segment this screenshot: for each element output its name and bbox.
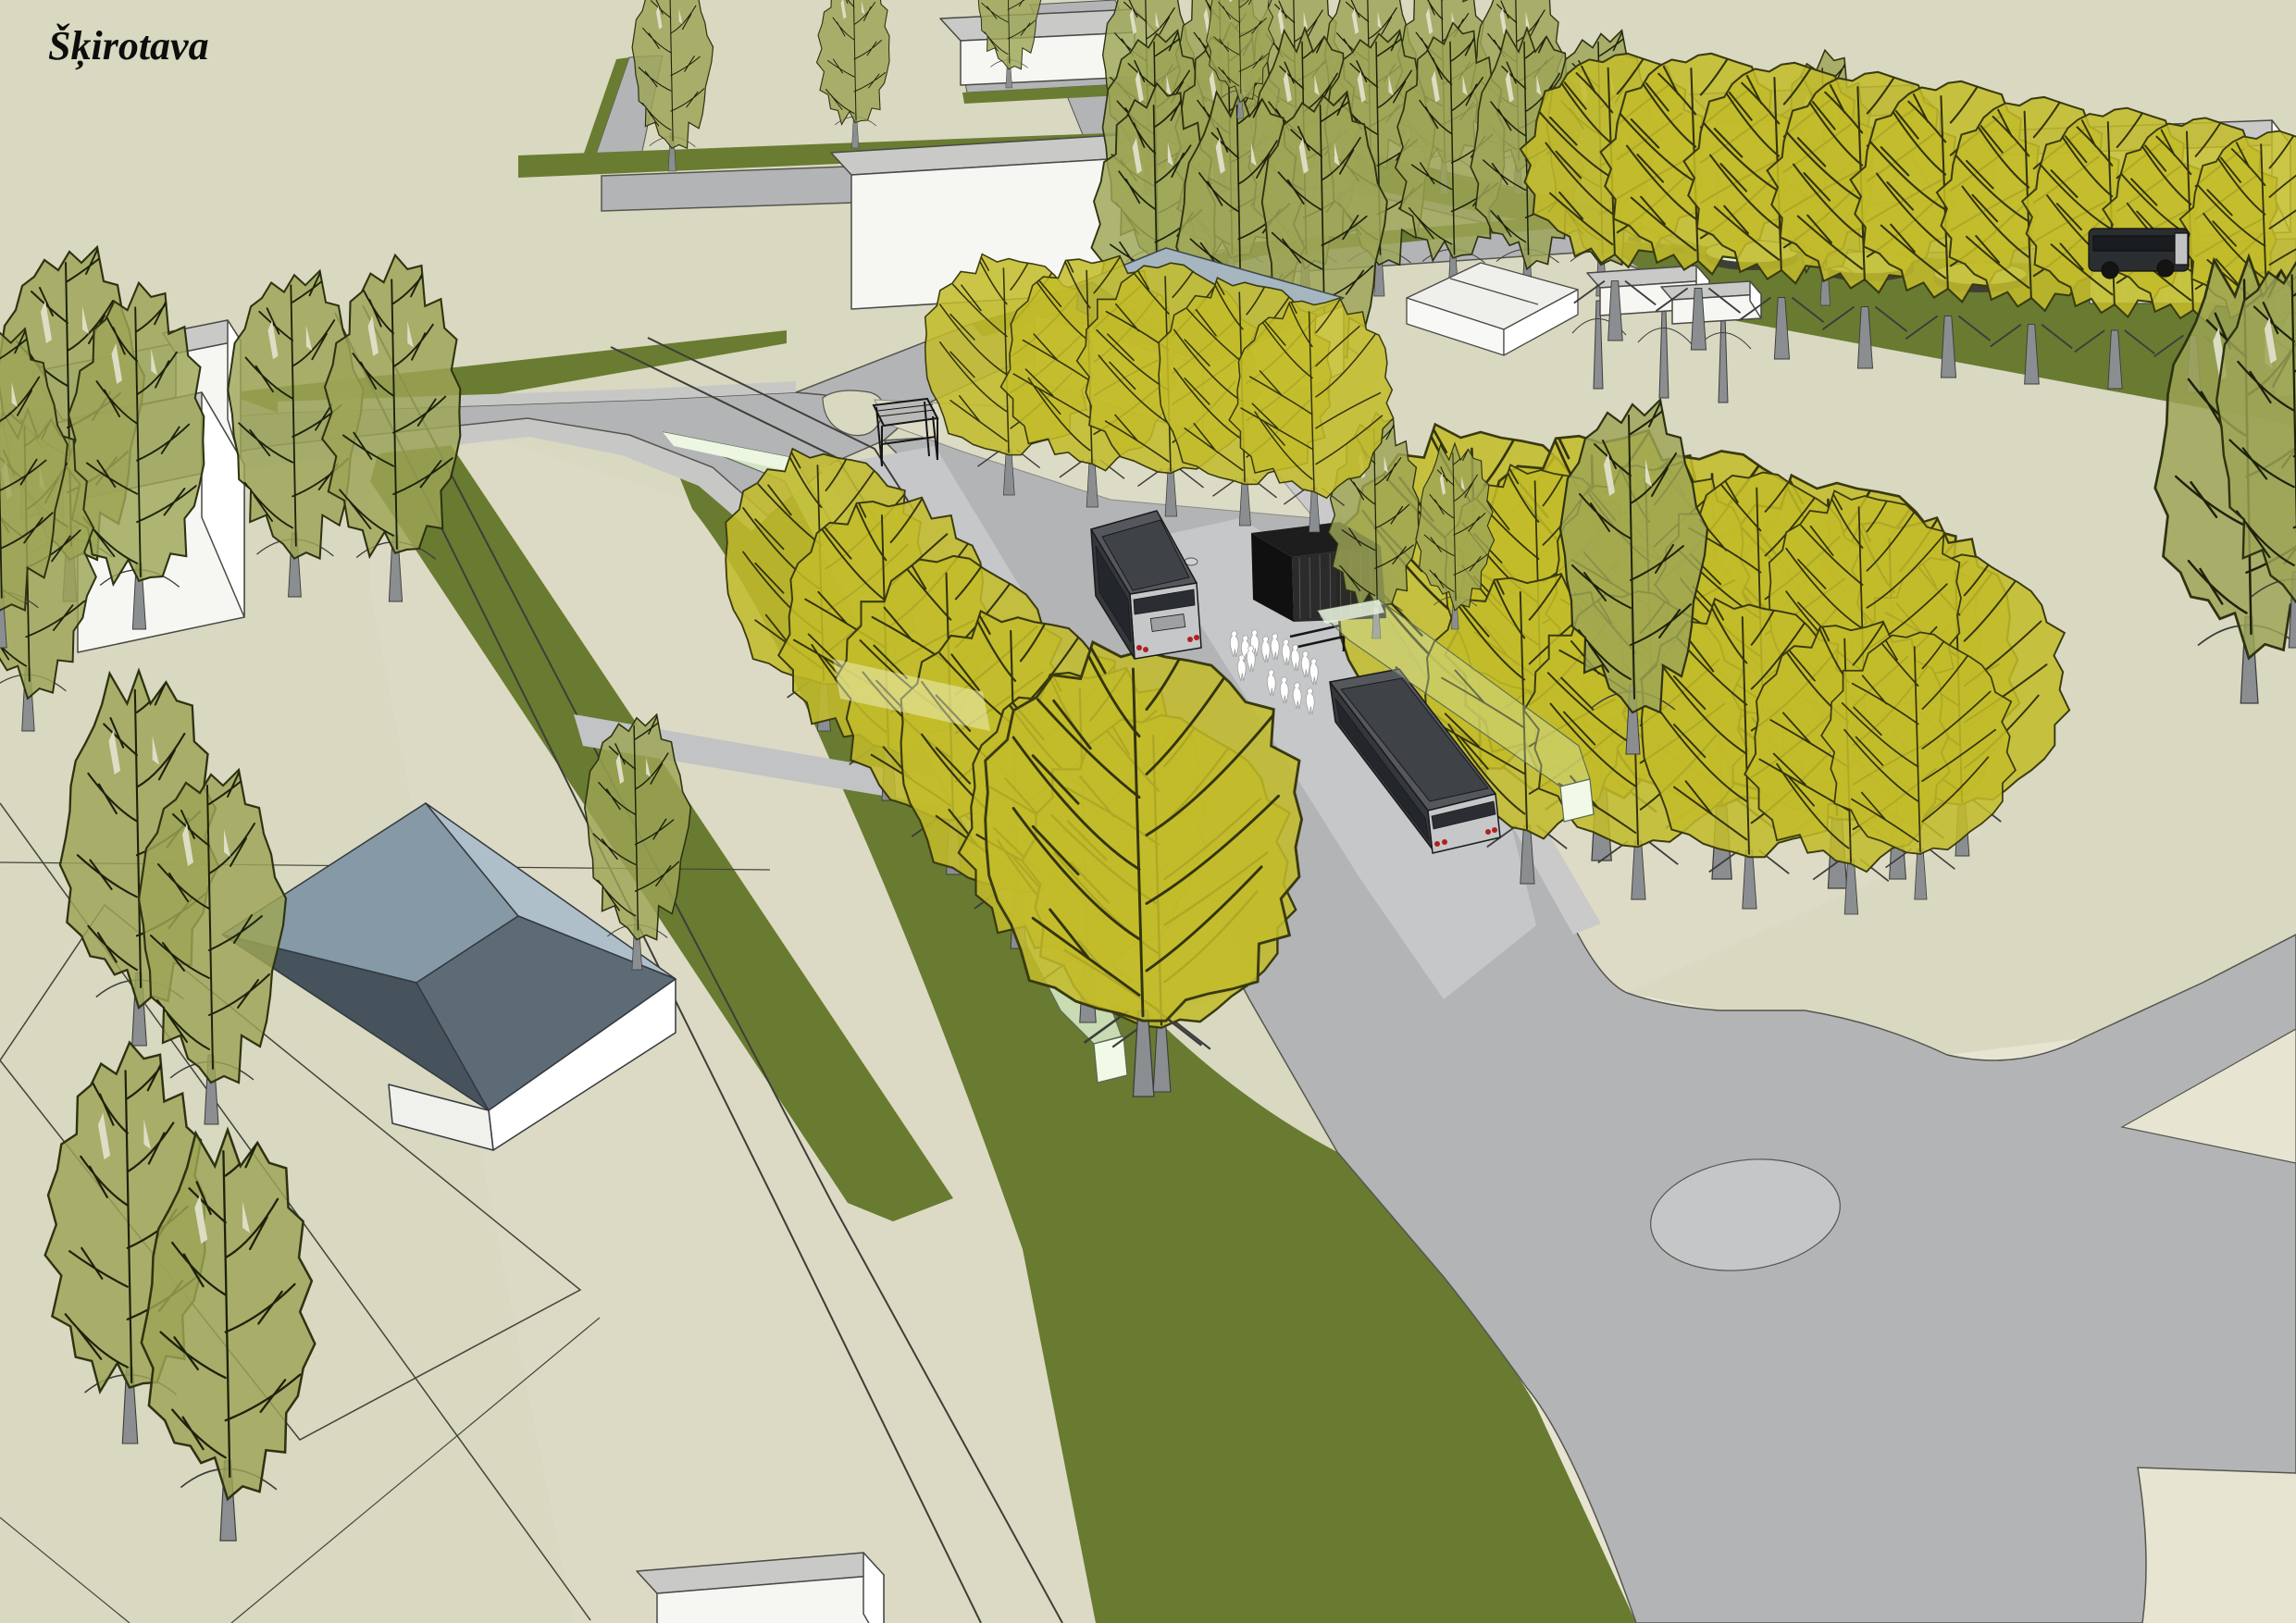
svg-text:Šķirotava: Šķirotava (48, 23, 209, 70)
